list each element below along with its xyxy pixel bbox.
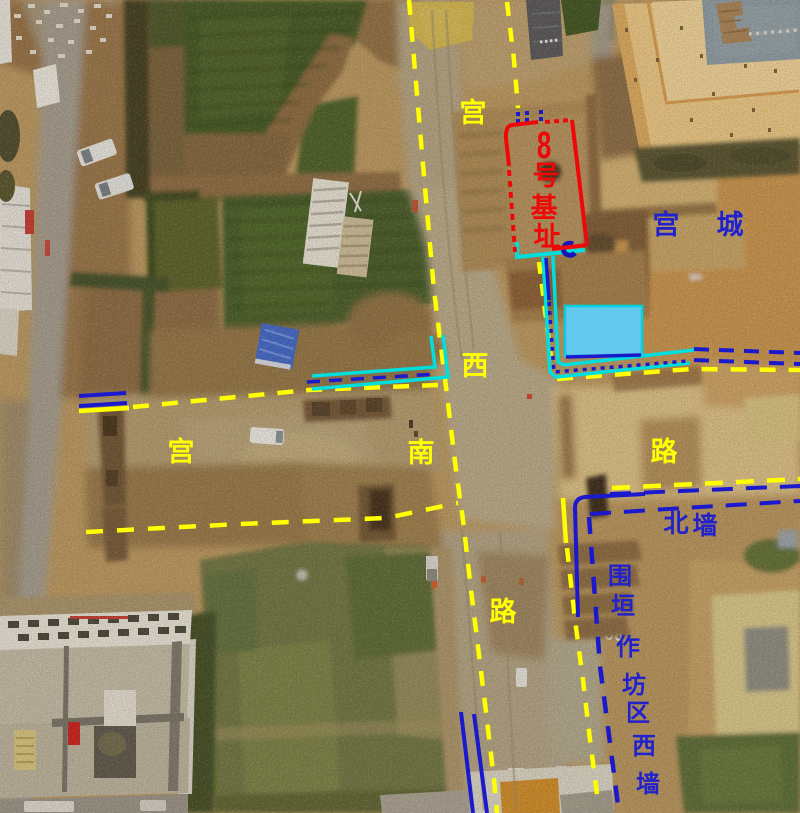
svg-text:围: 围 — [608, 563, 632, 590]
svg-text:路: 路 — [490, 596, 518, 627]
svg-text:垣: 垣 — [611, 593, 635, 620]
svg-text:路: 路 — [651, 436, 679, 467]
svg-text:北: 北 — [663, 510, 688, 538]
svg-text:墙: 墙 — [636, 770, 660, 798]
svg-text:西: 西 — [462, 351, 489, 381]
svg-text:号: 号 — [533, 161, 560, 191]
svg-text:址: 址 — [534, 222, 561, 252]
svg-text:墙: 墙 — [692, 512, 717, 540]
svg-text:宫: 宫 — [168, 436, 195, 467]
svg-text:坊: 坊 — [622, 671, 646, 699]
svg-text:基: 基 — [531, 193, 559, 223]
svg-text:城: 城 — [717, 210, 744, 240]
svg-text:宫: 宫 — [460, 97, 487, 128]
svg-text:宫: 宫 — [653, 209, 680, 240]
svg-text:南: 南 — [408, 438, 435, 468]
svg-text:区: 区 — [626, 700, 650, 727]
svg-text:西: 西 — [632, 733, 656, 760]
svg-text:8: 8 — [537, 124, 551, 166]
svg-text:作: 作 — [616, 634, 640, 661]
